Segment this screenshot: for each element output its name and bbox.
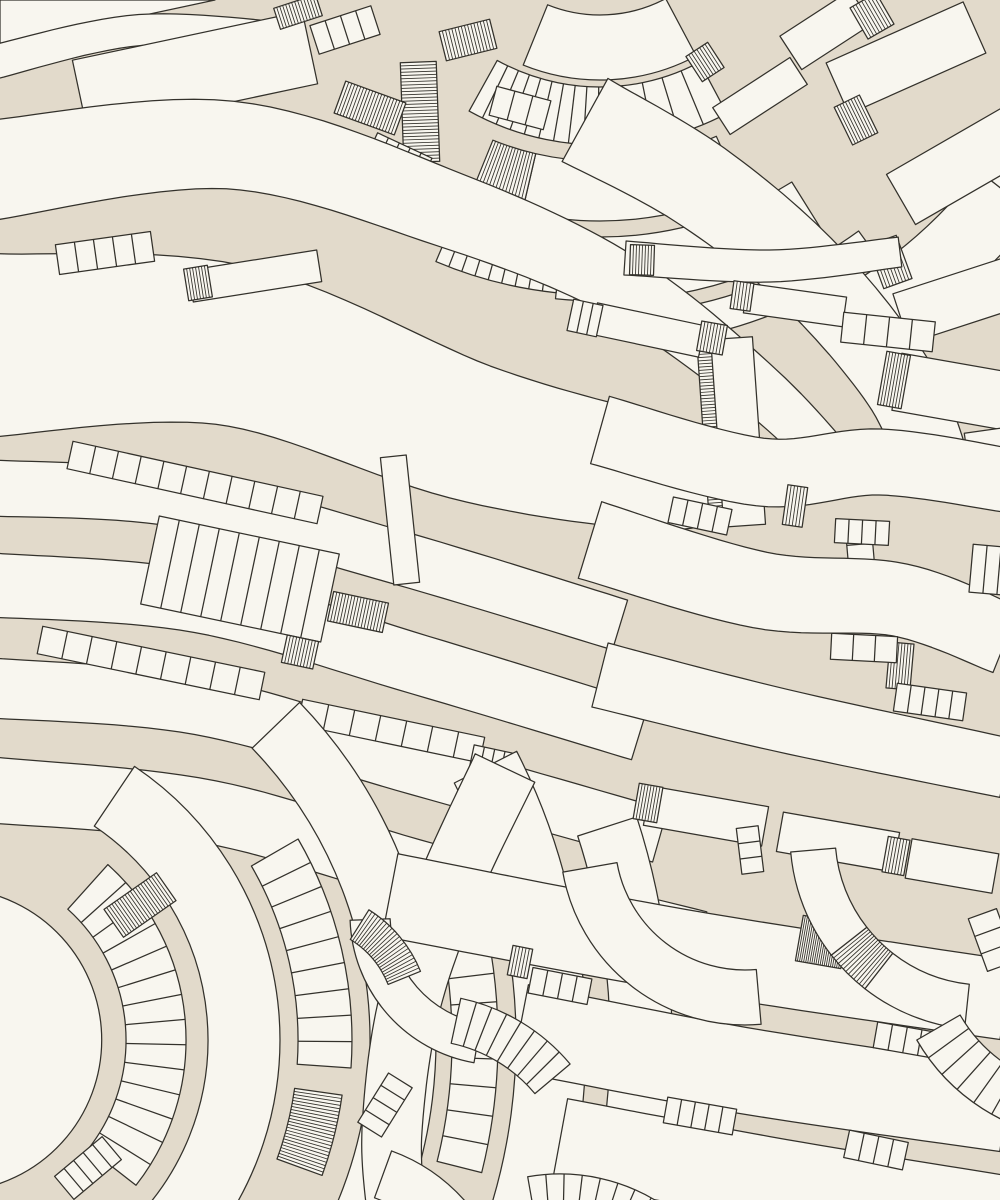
artwork-canvas	[0, 0, 1000, 1200]
abstract-map-pattern	[0, 0, 1000, 1200]
